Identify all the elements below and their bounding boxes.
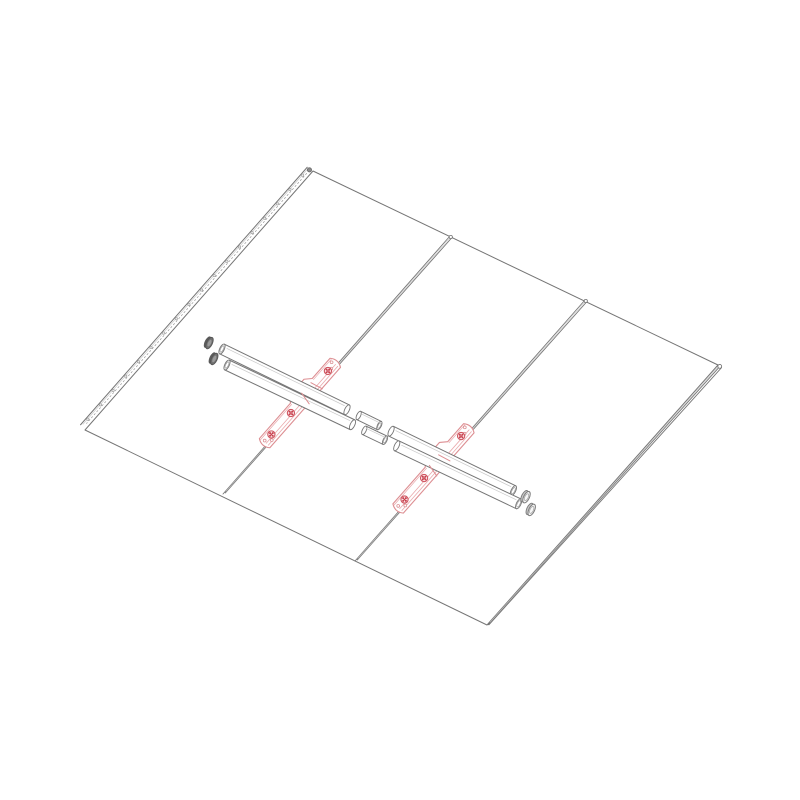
strip-end-cap xyxy=(307,168,311,172)
strip-hole xyxy=(226,260,228,262)
plate-hole xyxy=(263,439,266,442)
plate-hole xyxy=(404,504,407,507)
strip-hole xyxy=(264,217,266,219)
strip-hole xyxy=(276,203,278,205)
strip-hole xyxy=(213,274,215,276)
strip-hole xyxy=(125,375,127,377)
seam-top-cap xyxy=(449,235,452,238)
plate-hole xyxy=(397,505,400,508)
strip-hole xyxy=(301,174,303,176)
assembly-svg xyxy=(0,0,800,800)
strip-hole xyxy=(200,289,202,291)
strip-hole xyxy=(137,361,139,363)
strip-hole xyxy=(150,346,152,348)
plate-hole xyxy=(270,439,273,442)
seam-top-cap xyxy=(584,299,587,302)
strip-hole xyxy=(99,404,101,406)
roof-panel xyxy=(85,171,718,625)
plate-hole xyxy=(463,426,466,429)
plate-hole xyxy=(330,361,333,364)
strip-hole xyxy=(188,303,190,305)
strip-hole xyxy=(238,246,240,248)
rib-end-cap xyxy=(718,364,722,368)
strip-hole xyxy=(162,332,164,334)
strip-hole xyxy=(289,188,291,190)
technical-drawing xyxy=(0,0,800,800)
strip-hole xyxy=(87,418,89,420)
strip-hole xyxy=(112,389,114,391)
strip-hole xyxy=(251,231,253,233)
strip-hole xyxy=(175,318,177,320)
